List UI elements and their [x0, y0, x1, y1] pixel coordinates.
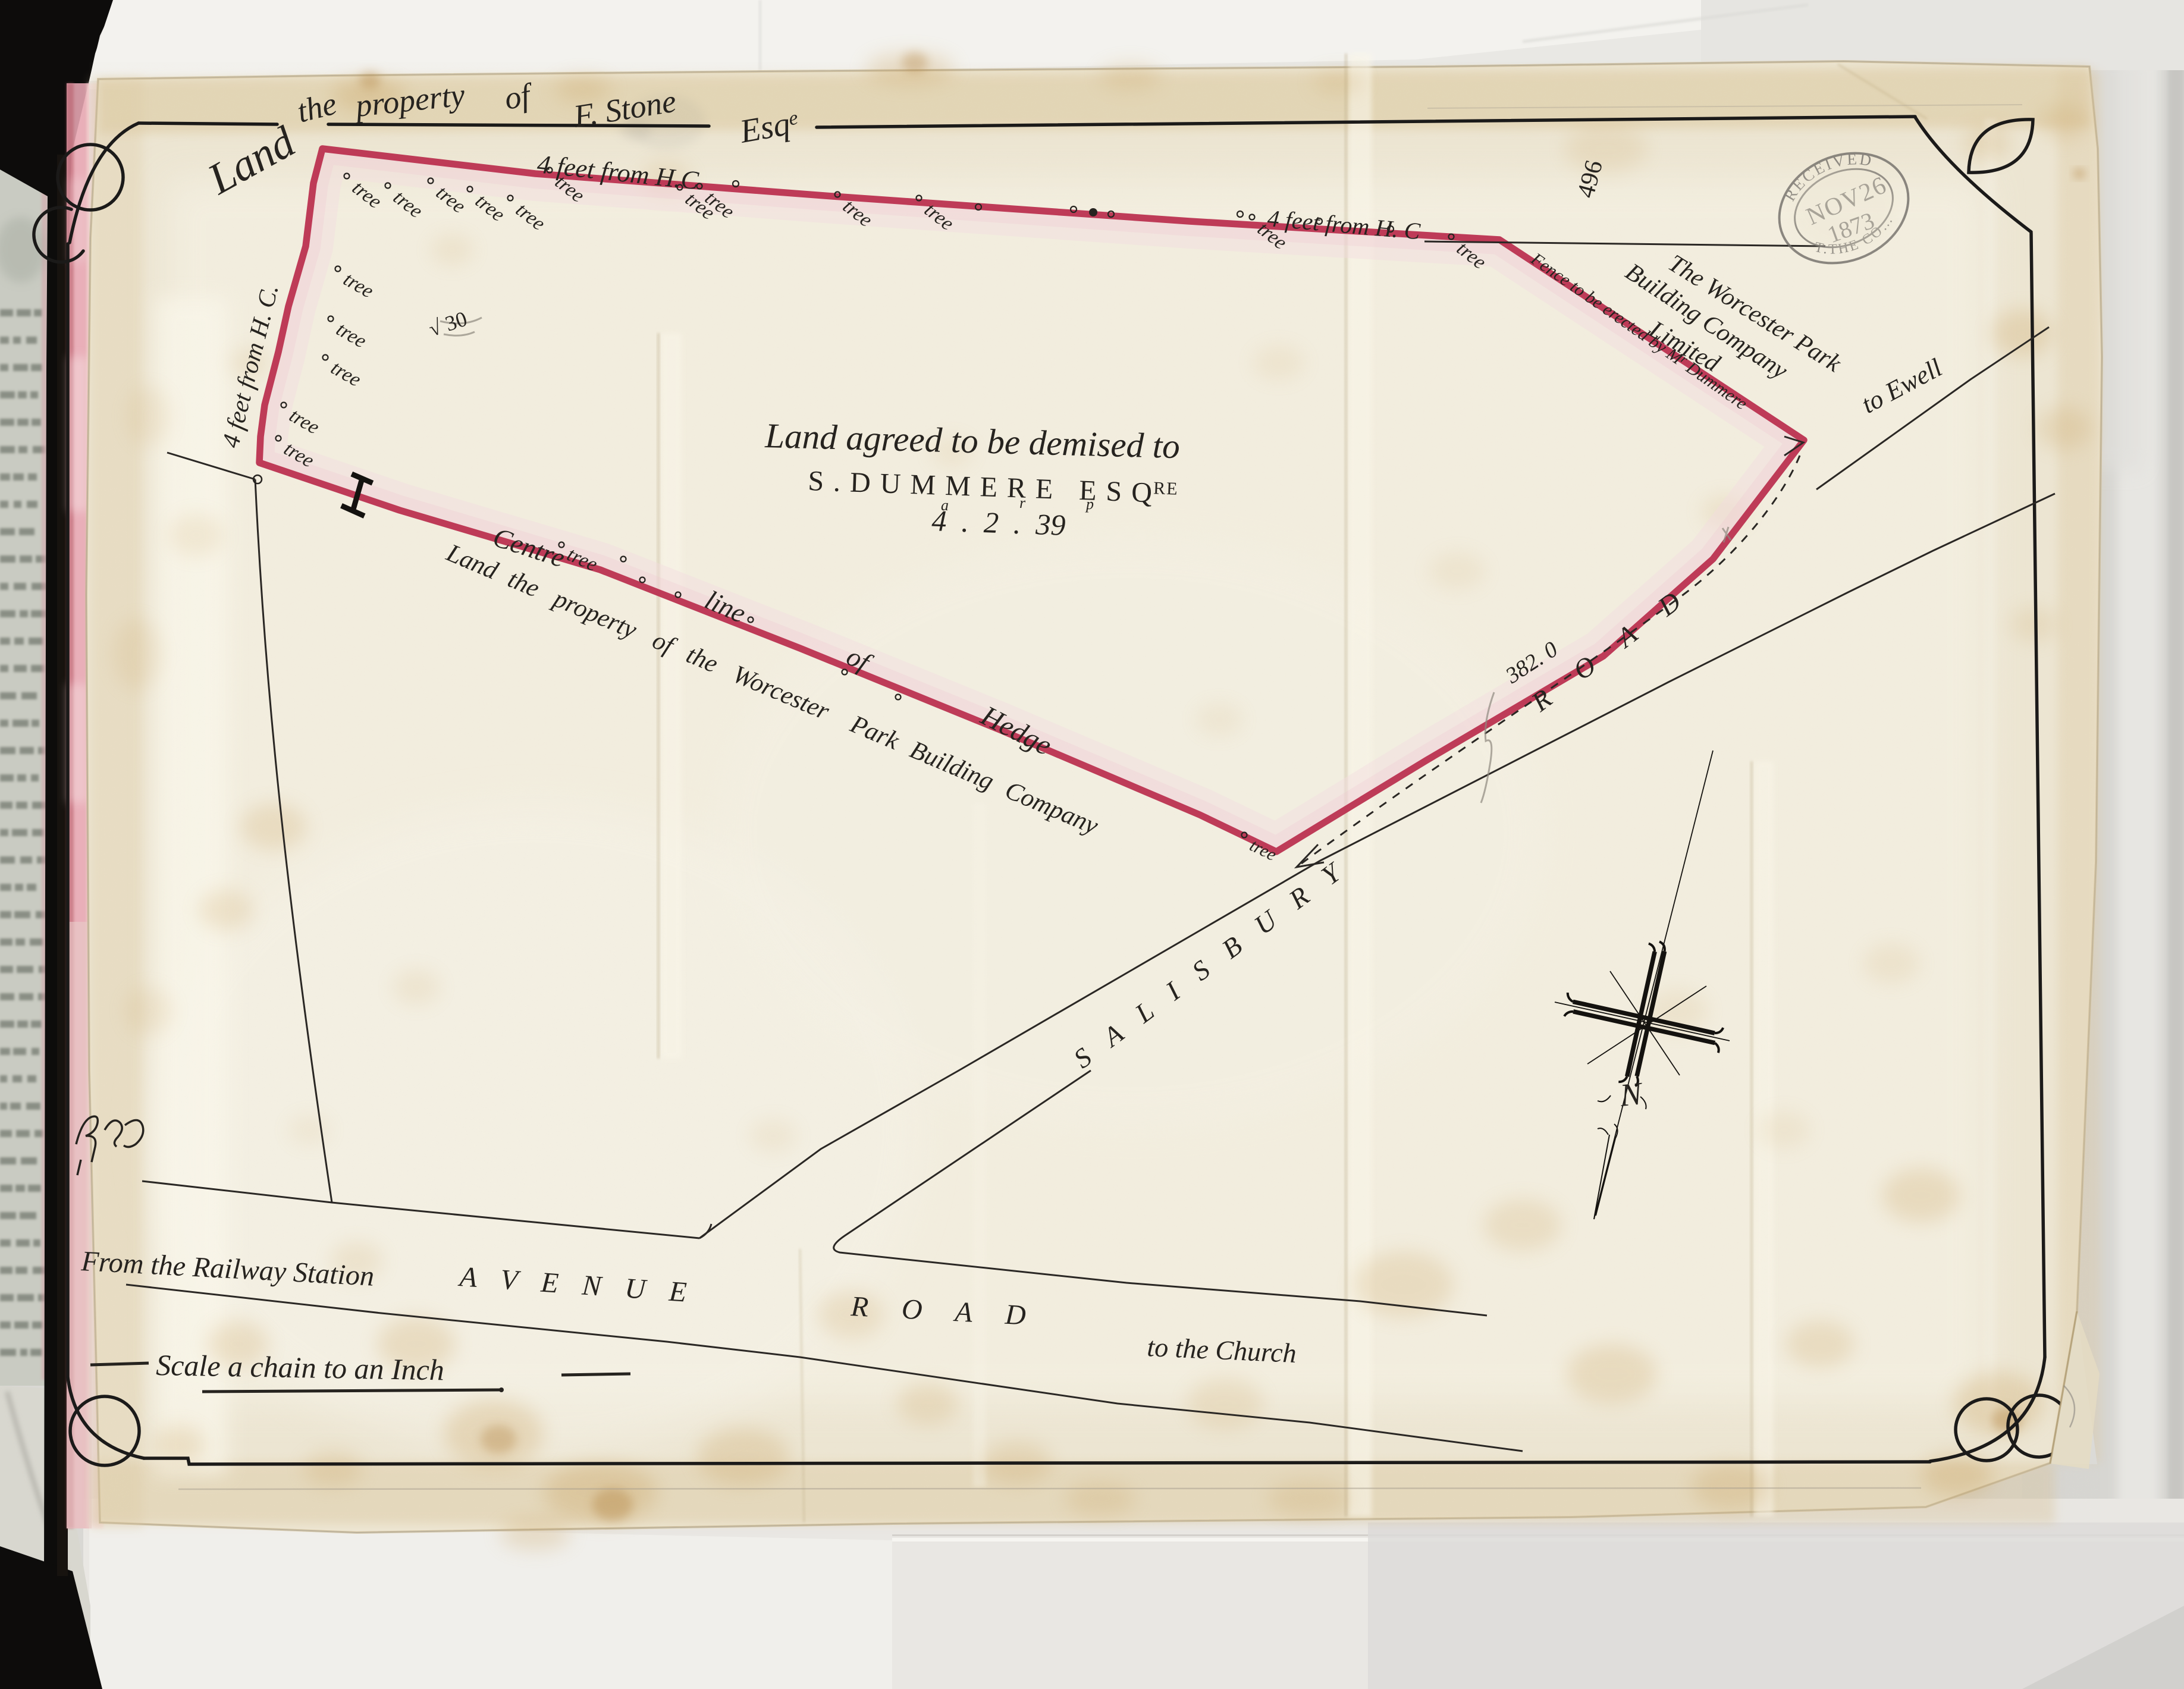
svg-text:r: r [1019, 494, 1026, 511]
svg-text:Scale a chain to an Inch: Scale a chain to an Inch [156, 1348, 445, 1386]
svg-text:p: p [1085, 495, 1094, 513]
svg-text:4 . 2 . 39: 4 . 2 . 39 [931, 504, 1066, 542]
svg-text:a: a [941, 497, 949, 514]
